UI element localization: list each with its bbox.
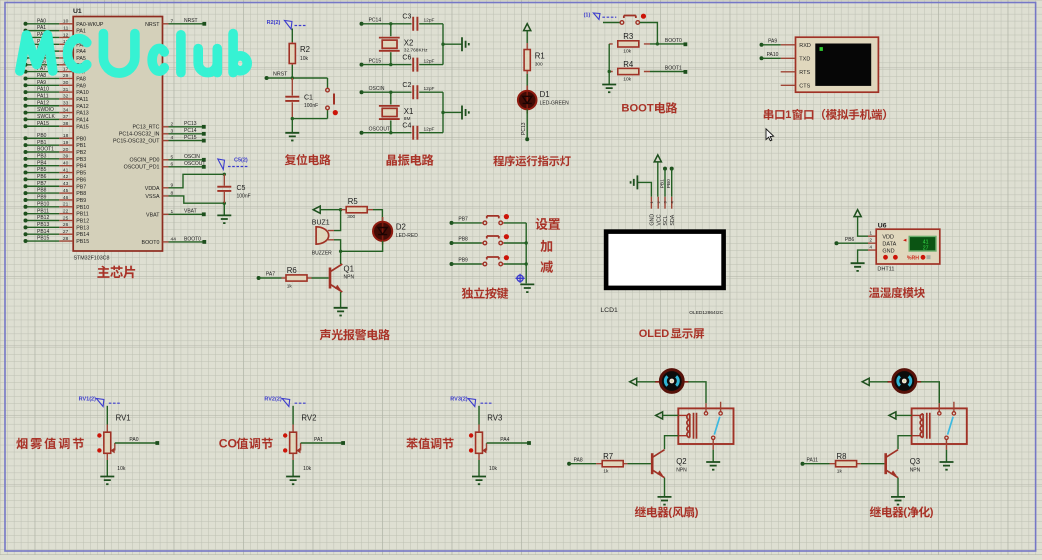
svg-text:PA8: PA8 xyxy=(574,457,583,463)
svg-text:1k: 1k xyxy=(603,469,609,475)
svg-text:VCC: VCC xyxy=(656,214,662,225)
svg-text:5: 5 xyxy=(171,154,174,160)
svg-text:44: 44 xyxy=(171,237,177,243)
svg-text:30: 30 xyxy=(63,80,69,86)
svg-text:6: 6 xyxy=(171,161,174,167)
svg-text:PB6: PB6 xyxy=(37,174,47,180)
svg-text:45: 45 xyxy=(63,188,69,194)
svg-text:PA1: PA1 xyxy=(37,25,46,31)
svg-text:12pF: 12pF xyxy=(424,18,435,24)
svg-text:10k: 10k xyxy=(303,466,312,472)
svg-text:PC14-OSC32_IN: PC14-OSC32_IN xyxy=(119,132,160,138)
svg-text:1k: 1k xyxy=(287,283,293,289)
svg-text:PA1: PA1 xyxy=(76,29,86,35)
svg-text:STM32F103C8: STM32F103C8 xyxy=(74,256,110,262)
svg-text:NPN: NPN xyxy=(910,467,921,473)
svg-text:PB11: PB11 xyxy=(37,208,49,214)
svg-text:DATA: DATA xyxy=(882,241,896,247)
svg-text:R4: R4 xyxy=(623,60,634,69)
svg-text:BOOT0: BOOT0 xyxy=(142,240,160,246)
svg-text:PB0: PB0 xyxy=(37,133,47,139)
svg-text:CO: CO xyxy=(219,436,237,450)
svg-text:28: 28 xyxy=(63,236,69,242)
svg-text:12pF: 12pF xyxy=(424,86,435,92)
svg-text:PA11: PA11 xyxy=(807,457,819,463)
svg-text:PB15: PB15 xyxy=(76,239,89,245)
svg-text:PB1: PB1 xyxy=(659,179,665,188)
svg-text:300: 300 xyxy=(535,62,543,68)
svg-text:10: 10 xyxy=(63,19,69,25)
svg-text:OLED: OLED xyxy=(639,328,670,340)
svg-text:RV1(2): RV1(2) xyxy=(79,397,96,403)
svg-text:SCL: SCL xyxy=(663,215,669,225)
svg-text:PC15: PC15 xyxy=(184,135,197,141)
svg-text:12pF: 12pF xyxy=(424,127,435,133)
svg-text:D2: D2 xyxy=(396,223,406,232)
svg-text:X1: X1 xyxy=(404,107,414,116)
svg-text:PB8: PB8 xyxy=(76,191,86,197)
svg-text:27: 27 xyxy=(923,246,929,252)
svg-text:PB14: PB14 xyxy=(76,232,89,238)
svg-text:SWCLK: SWCLK xyxy=(37,114,55,120)
svg-text:GND: GND xyxy=(882,248,894,254)
svg-text:DHT11: DHT11 xyxy=(877,267,894,273)
svg-text:PA1: PA1 xyxy=(314,437,323,443)
svg-text:RV3: RV3 xyxy=(487,413,502,422)
svg-text:C6: C6 xyxy=(402,54,411,61)
svg-text:PA4: PA4 xyxy=(500,437,509,443)
svg-text:41: 41 xyxy=(63,167,69,173)
svg-text:PB12: PB12 xyxy=(76,219,89,225)
svg-text:OSCOUT: OSCOUT xyxy=(369,127,390,133)
svg-text:R3: R3 xyxy=(623,32,633,41)
svg-text:PC15: PC15 xyxy=(369,58,382,64)
svg-text:PA10: PA10 xyxy=(767,52,779,58)
svg-text:PA7: PA7 xyxy=(266,272,275,278)
svg-text:10k: 10k xyxy=(489,466,498,472)
svg-text:C2: C2 xyxy=(402,82,411,89)
svg-text:R1: R1 xyxy=(535,52,545,61)
svg-text:PA14: PA14 xyxy=(76,117,89,123)
svg-text:NRST: NRST xyxy=(273,72,288,78)
svg-text:OSCIN_PD0: OSCIN_PD0 xyxy=(129,158,159,164)
svg-text:BUZ1: BUZ1 xyxy=(312,220,330,227)
svg-text:NPN: NPN xyxy=(676,467,687,473)
svg-text:PC13: PC13 xyxy=(521,122,527,135)
svg-text:40: 40 xyxy=(63,161,69,167)
svg-text:32: 32 xyxy=(63,94,69,100)
svg-text:10k: 10k xyxy=(117,466,126,472)
svg-text:8M: 8M xyxy=(404,116,411,122)
svg-text:NRST: NRST xyxy=(145,22,160,28)
svg-text:10k: 10k xyxy=(623,49,631,55)
svg-text:VDD: VDD xyxy=(882,235,894,241)
svg-text:7: 7 xyxy=(171,18,174,24)
svg-text:PB2: PB2 xyxy=(76,150,86,156)
svg-text:2: 2 xyxy=(171,121,174,127)
svg-text:PB6: PB6 xyxy=(76,177,86,183)
svg-text:20: 20 xyxy=(63,147,69,153)
svg-text:GND: GND xyxy=(650,214,656,226)
svg-text:OLED12864I2C: OLED12864I2C xyxy=(689,310,723,316)
svg-text:U6: U6 xyxy=(878,222,887,229)
svg-text:RV1: RV1 xyxy=(116,413,131,422)
svg-text:PA9: PA9 xyxy=(768,39,777,45)
svg-text:PB5: PB5 xyxy=(37,167,47,173)
svg-text:R7: R7 xyxy=(603,452,613,461)
svg-text:%RH: %RH xyxy=(907,255,919,261)
svg-text:PB4: PB4 xyxy=(37,160,47,166)
svg-text:PA9: PA9 xyxy=(76,83,86,89)
svg-text:46: 46 xyxy=(63,195,69,201)
svg-text:PA4: PA4 xyxy=(76,49,86,55)
svg-text:OSCIN: OSCIN xyxy=(184,154,200,160)
svg-text:RTS: RTS xyxy=(799,70,810,76)
svg-text:31: 31 xyxy=(63,87,69,93)
svg-text:PB6: PB6 xyxy=(845,237,855,243)
svg-text:PB3: PB3 xyxy=(37,153,47,159)
svg-text:PB8: PB8 xyxy=(458,237,468,243)
svg-text:PC14: PC14 xyxy=(369,18,382,24)
svg-text:25: 25 xyxy=(63,215,69,221)
svg-text:PB9: PB9 xyxy=(37,195,47,201)
svg-text:Q3: Q3 xyxy=(910,457,920,466)
svg-text:C4: C4 xyxy=(402,123,411,130)
svg-text:PB15: PB15 xyxy=(37,236,49,242)
svg-text:C5: C5 xyxy=(237,185,246,192)
svg-text:PA12: PA12 xyxy=(37,100,49,106)
svg-text:4: 4 xyxy=(171,135,174,141)
svg-text:D1: D1 xyxy=(540,90,550,99)
svg-text:VDDA: VDDA xyxy=(145,186,160,192)
svg-text:R2(2): R2(2) xyxy=(267,20,281,26)
svg-text:PB0: PB0 xyxy=(666,179,672,188)
svg-text:): ) xyxy=(930,507,934,519)
svg-text:R5: R5 xyxy=(348,197,359,206)
svg-text:(: ( xyxy=(903,507,907,519)
svg-text:PA11: PA11 xyxy=(37,94,49,100)
svg-text:PA12: PA12 xyxy=(76,104,89,110)
svg-text:OSCOUT: OSCOUT xyxy=(184,161,205,167)
svg-text:PB10: PB10 xyxy=(37,201,49,207)
svg-text:PB11: PB11 xyxy=(76,212,89,218)
svg-text:BOOT0: BOOT0 xyxy=(665,38,682,44)
svg-text:C1: C1 xyxy=(304,95,313,102)
svg-text:1: 1 xyxy=(171,209,174,215)
svg-text:PA11: PA11 xyxy=(76,97,88,103)
svg-text:1: 1 xyxy=(785,109,791,121)
svg-text:300: 300 xyxy=(347,214,355,220)
svg-text:PA13: PA13 xyxy=(76,111,89,117)
svg-text:LED-GREEN: LED-GREEN xyxy=(540,101,570,107)
svg-text:RXD: RXD xyxy=(799,43,811,49)
svg-text:41: 41 xyxy=(923,239,929,245)
svg-text:Q2: Q2 xyxy=(676,457,686,466)
svg-text:100nF: 100nF xyxy=(304,103,318,109)
svg-text:33: 33 xyxy=(63,101,69,107)
svg-text:(: ( xyxy=(668,507,672,519)
svg-text:VBAT: VBAT xyxy=(184,209,197,215)
svg-text:VSSA: VSSA xyxy=(145,194,160,200)
svg-text:PB9: PB9 xyxy=(458,258,468,264)
svg-text:PB9: PB9 xyxy=(76,198,86,204)
svg-text:BOOT: BOOT xyxy=(621,103,653,115)
svg-text:PB7: PB7 xyxy=(37,181,47,187)
svg-text:BOOT0: BOOT0 xyxy=(184,236,201,242)
svg-text:PA10: PA10 xyxy=(76,90,89,96)
svg-text:26: 26 xyxy=(63,222,69,228)
svg-text:BUZZER: BUZZER xyxy=(312,251,332,257)
svg-text:OSCIN: OSCIN xyxy=(369,86,385,92)
svg-text:PC13: PC13 xyxy=(184,121,197,127)
svg-text:12pF: 12pF xyxy=(424,58,435,64)
svg-text:PA0: PA0 xyxy=(129,437,138,443)
svg-text:PA0-WKUP: PA0-WKUP xyxy=(76,22,104,28)
svg-text:42: 42 xyxy=(63,174,69,180)
svg-text:LED-RED: LED-RED xyxy=(396,233,418,239)
svg-text:RV2: RV2 xyxy=(301,413,316,422)
svg-text:PA0: PA0 xyxy=(37,18,46,24)
svg-text:LCD1: LCD1 xyxy=(600,307,618,314)
svg-text:27: 27 xyxy=(63,229,69,235)
svg-text:100nF: 100nF xyxy=(237,194,251,200)
svg-text:PB3: PB3 xyxy=(76,157,86,163)
svg-text:32.768KHz: 32.768KHz xyxy=(404,48,428,54)
svg-text:BOOT1: BOOT1 xyxy=(665,66,682,72)
svg-text:22: 22 xyxy=(63,208,69,214)
svg-text:NPN: NPN xyxy=(344,275,355,281)
svg-text:): ) xyxy=(695,507,699,519)
svg-text:PB13: PB13 xyxy=(37,222,49,228)
svg-text:TXD: TXD xyxy=(799,56,810,62)
svg-text:U1: U1 xyxy=(73,8,82,15)
svg-text:PB12: PB12 xyxy=(37,215,49,221)
svg-text:34: 34 xyxy=(63,107,69,113)
svg-text:PB10: PB10 xyxy=(76,205,89,211)
svg-text:VBAT: VBAT xyxy=(146,212,160,218)
svg-text:R2: R2 xyxy=(300,45,310,54)
svg-text:PA8: PA8 xyxy=(76,76,86,82)
svg-text:39: 39 xyxy=(63,154,69,160)
svg-text:29: 29 xyxy=(63,73,69,79)
svg-text:PB13: PB13 xyxy=(76,225,89,231)
svg-text:X2: X2 xyxy=(404,39,414,48)
svg-text:R8: R8 xyxy=(837,452,847,461)
svg-text:43: 43 xyxy=(63,181,69,187)
svg-text:PC13_RTC: PC13_RTC xyxy=(133,125,160,131)
svg-text:OSCOUT_PD1: OSCOUT_PD1 xyxy=(124,165,160,171)
svg-text:19: 19 xyxy=(63,140,69,146)
svg-text:PC15-OSC32_OUT: PC15-OSC32_OUT xyxy=(113,138,160,144)
svg-text:11: 11 xyxy=(63,25,68,31)
svg-text:BOOT1: BOOT1 xyxy=(37,147,54,153)
svg-text:CTS: CTS xyxy=(799,83,810,89)
svg-text:1k: 1k xyxy=(837,469,843,475)
svg-text:Q1: Q1 xyxy=(344,265,354,274)
svg-text:SWDIO: SWDIO xyxy=(37,107,54,113)
svg-text:PC14: PC14 xyxy=(184,128,197,134)
svg-text:SDA: SDA xyxy=(670,214,676,225)
svg-text:12: 12 xyxy=(63,32,69,38)
svg-text:10k: 10k xyxy=(623,76,631,82)
svg-text:PB0: PB0 xyxy=(76,136,86,142)
svg-text:PB7: PB7 xyxy=(458,217,468,223)
svg-text:PA9: PA9 xyxy=(37,80,46,86)
svg-text:PB5: PB5 xyxy=(76,171,86,177)
svg-text:PA8: PA8 xyxy=(37,73,46,79)
svg-text:PB1: PB1 xyxy=(37,140,47,146)
svg-text:C3: C3 xyxy=(402,14,411,21)
svg-text:PA15: PA15 xyxy=(37,121,49,127)
svg-text:10k: 10k xyxy=(300,56,309,62)
svg-text:RV2(2): RV2(2) xyxy=(264,397,281,403)
svg-text:PA15: PA15 xyxy=(76,124,89,130)
svg-text:21: 21 xyxy=(63,202,69,208)
svg-text:PB4: PB4 xyxy=(76,164,86,170)
svg-text:RV3(2): RV3(2) xyxy=(450,397,467,403)
svg-text:PB14: PB14 xyxy=(37,229,49,235)
svg-text:(1): (1) xyxy=(584,13,591,19)
svg-text:37: 37 xyxy=(63,114,69,120)
svg-text:C5(2): C5(2) xyxy=(234,158,248,164)
svg-text:38: 38 xyxy=(63,121,69,127)
svg-text:R6: R6 xyxy=(287,266,297,275)
svg-text:NRST: NRST xyxy=(184,18,198,24)
svg-text:3: 3 xyxy=(171,128,174,134)
svg-text:PA10: PA10 xyxy=(37,87,49,93)
svg-text:PB1: PB1 xyxy=(76,143,86,149)
svg-text:PB7: PB7 xyxy=(76,184,86,190)
svg-text:PB8: PB8 xyxy=(37,188,47,194)
svg-text:18: 18 xyxy=(63,133,69,139)
